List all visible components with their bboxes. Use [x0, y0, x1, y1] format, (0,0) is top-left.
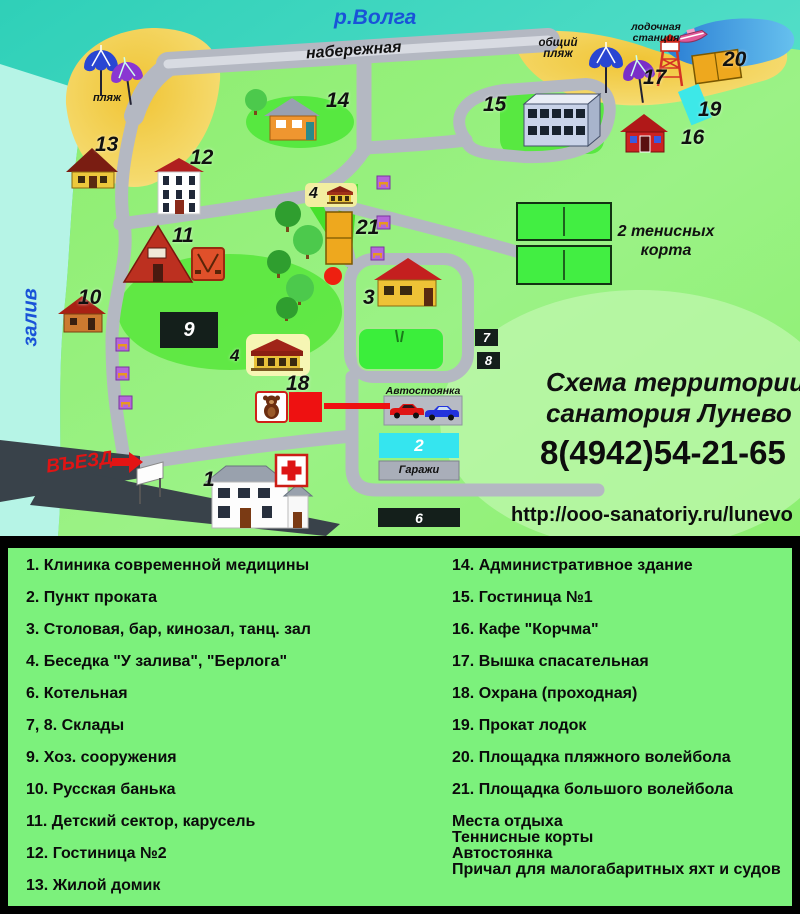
- map-marker-10: 10: [78, 286, 101, 310]
- territory-map: р.Волга набережная пляж общий пляж лодоч…: [0, 0, 800, 536]
- map-marker-4b: 4: [230, 346, 239, 366]
- pavilion-bay-icon: [246, 334, 310, 376]
- legend-item-20: 20. Площадка пляжного волейбола: [452, 749, 731, 767]
- legend-item-19: 19. Прокат лодок: [452, 717, 586, 735]
- map-title-line2: санатория Лунево: [546, 398, 800, 429]
- legend-item-16: 16. Кафе "Корчма": [452, 621, 599, 639]
- hotel1-building-icon: [524, 94, 600, 146]
- lawn-pad: [358, 328, 444, 370]
- map-title: Схема территории санатория Лунево: [546, 367, 800, 429]
- legend-item-10: 10. Русская банька: [26, 781, 176, 799]
- map-marker-12: 12: [190, 146, 213, 170]
- red-cross-icon: [276, 455, 307, 486]
- map-marker-9: 9: [160, 312, 218, 348]
- map-marker-18: 18: [286, 372, 309, 396]
- checkpoint-square: [289, 392, 322, 422]
- legend-item-13: 13. Жилой домик: [26, 877, 160, 895]
- legend-item-9: 9. Хоз. сооружения: [26, 749, 177, 767]
- map-marker-6: 6: [378, 508, 460, 527]
- river-label: р.Волга: [334, 6, 416, 30]
- legend-item-15: 15. Гостиница №1: [452, 589, 593, 607]
- garages-label: Гаражи: [379, 464, 459, 476]
- barrier-line: [324, 403, 390, 409]
- legend-item-1: 1. Клиника современной медицины: [26, 557, 309, 575]
- map-marker-21: 21: [356, 216, 379, 240]
- legend-item-18: 18. Охрана (проходная): [452, 685, 637, 703]
- beach-label: пляж: [93, 92, 121, 104]
- map-marker-14: 14: [326, 89, 349, 113]
- map-marker-3: 3: [363, 286, 375, 310]
- sanatorium-map-page: р.Волга набережная пляж общий пляж лодоч…: [0, 0, 800, 914]
- boat-station-label: лодочная станция: [628, 22, 684, 44]
- bay-label: залив: [20, 283, 43, 353]
- legend-item-14: 14. Административное здание: [452, 557, 693, 575]
- map-marker-20: 20: [723, 48, 746, 72]
- legend-extra-pier: Причал для малогабаритных яхт и судов: [452, 861, 781, 879]
- legend-item-6: 6. Котельная: [26, 685, 128, 703]
- map-marker-16: 16: [681, 126, 704, 150]
- map-marker-13: 13: [95, 133, 118, 157]
- map-marker-4a: 4: [309, 185, 318, 203]
- website-url: http://ooo-sanatoriy.ru/lunevo: [511, 504, 793, 527]
- legend-item-17: 17. Вышка спасательная: [452, 653, 649, 671]
- map-marker-17: 17: [643, 66, 666, 90]
- phone-number: 8(4942)54-21-65: [540, 434, 786, 472]
- carousel-icon: [192, 248, 224, 280]
- tennis-courts-label: 2 тенисных корта: [618, 222, 714, 260]
- legend-item-2: 2. Пункт проката: [26, 589, 157, 607]
- map-marker-2: 2: [379, 433, 459, 458]
- public-beach-label: общий пляж: [532, 38, 584, 60]
- legend-item-3: 3. Столовая, бар, кинозал, танц. зал: [26, 621, 311, 639]
- map-title-line1: Схема территории: [546, 367, 800, 398]
- red-circle-marker: [324, 267, 342, 285]
- legend-item-7-8: 7, 8. Склады: [26, 717, 124, 735]
- bear-icon: [256, 392, 287, 422]
- map-marker-15: 15: [483, 93, 506, 117]
- volleyball-court: [326, 212, 352, 264]
- legend-item-11: 11. Детский сектор, карусель: [26, 813, 255, 831]
- map-marker-1: 1: [203, 468, 215, 492]
- parking-label: Автостоянка: [384, 385, 462, 397]
- map-marker-19: 19: [698, 98, 721, 122]
- legend-item-4: 4. Беседка "У залива", "Берлога": [26, 653, 287, 671]
- map-marker-8: 8: [477, 352, 500, 369]
- map-marker-11: 11: [172, 224, 194, 248]
- legend-item-21: 21. Площадка большого волейбола: [452, 781, 733, 799]
- legend-item-12: 12. Гостиница №2: [26, 845, 167, 863]
- map-marker-7: 7: [475, 329, 498, 346]
